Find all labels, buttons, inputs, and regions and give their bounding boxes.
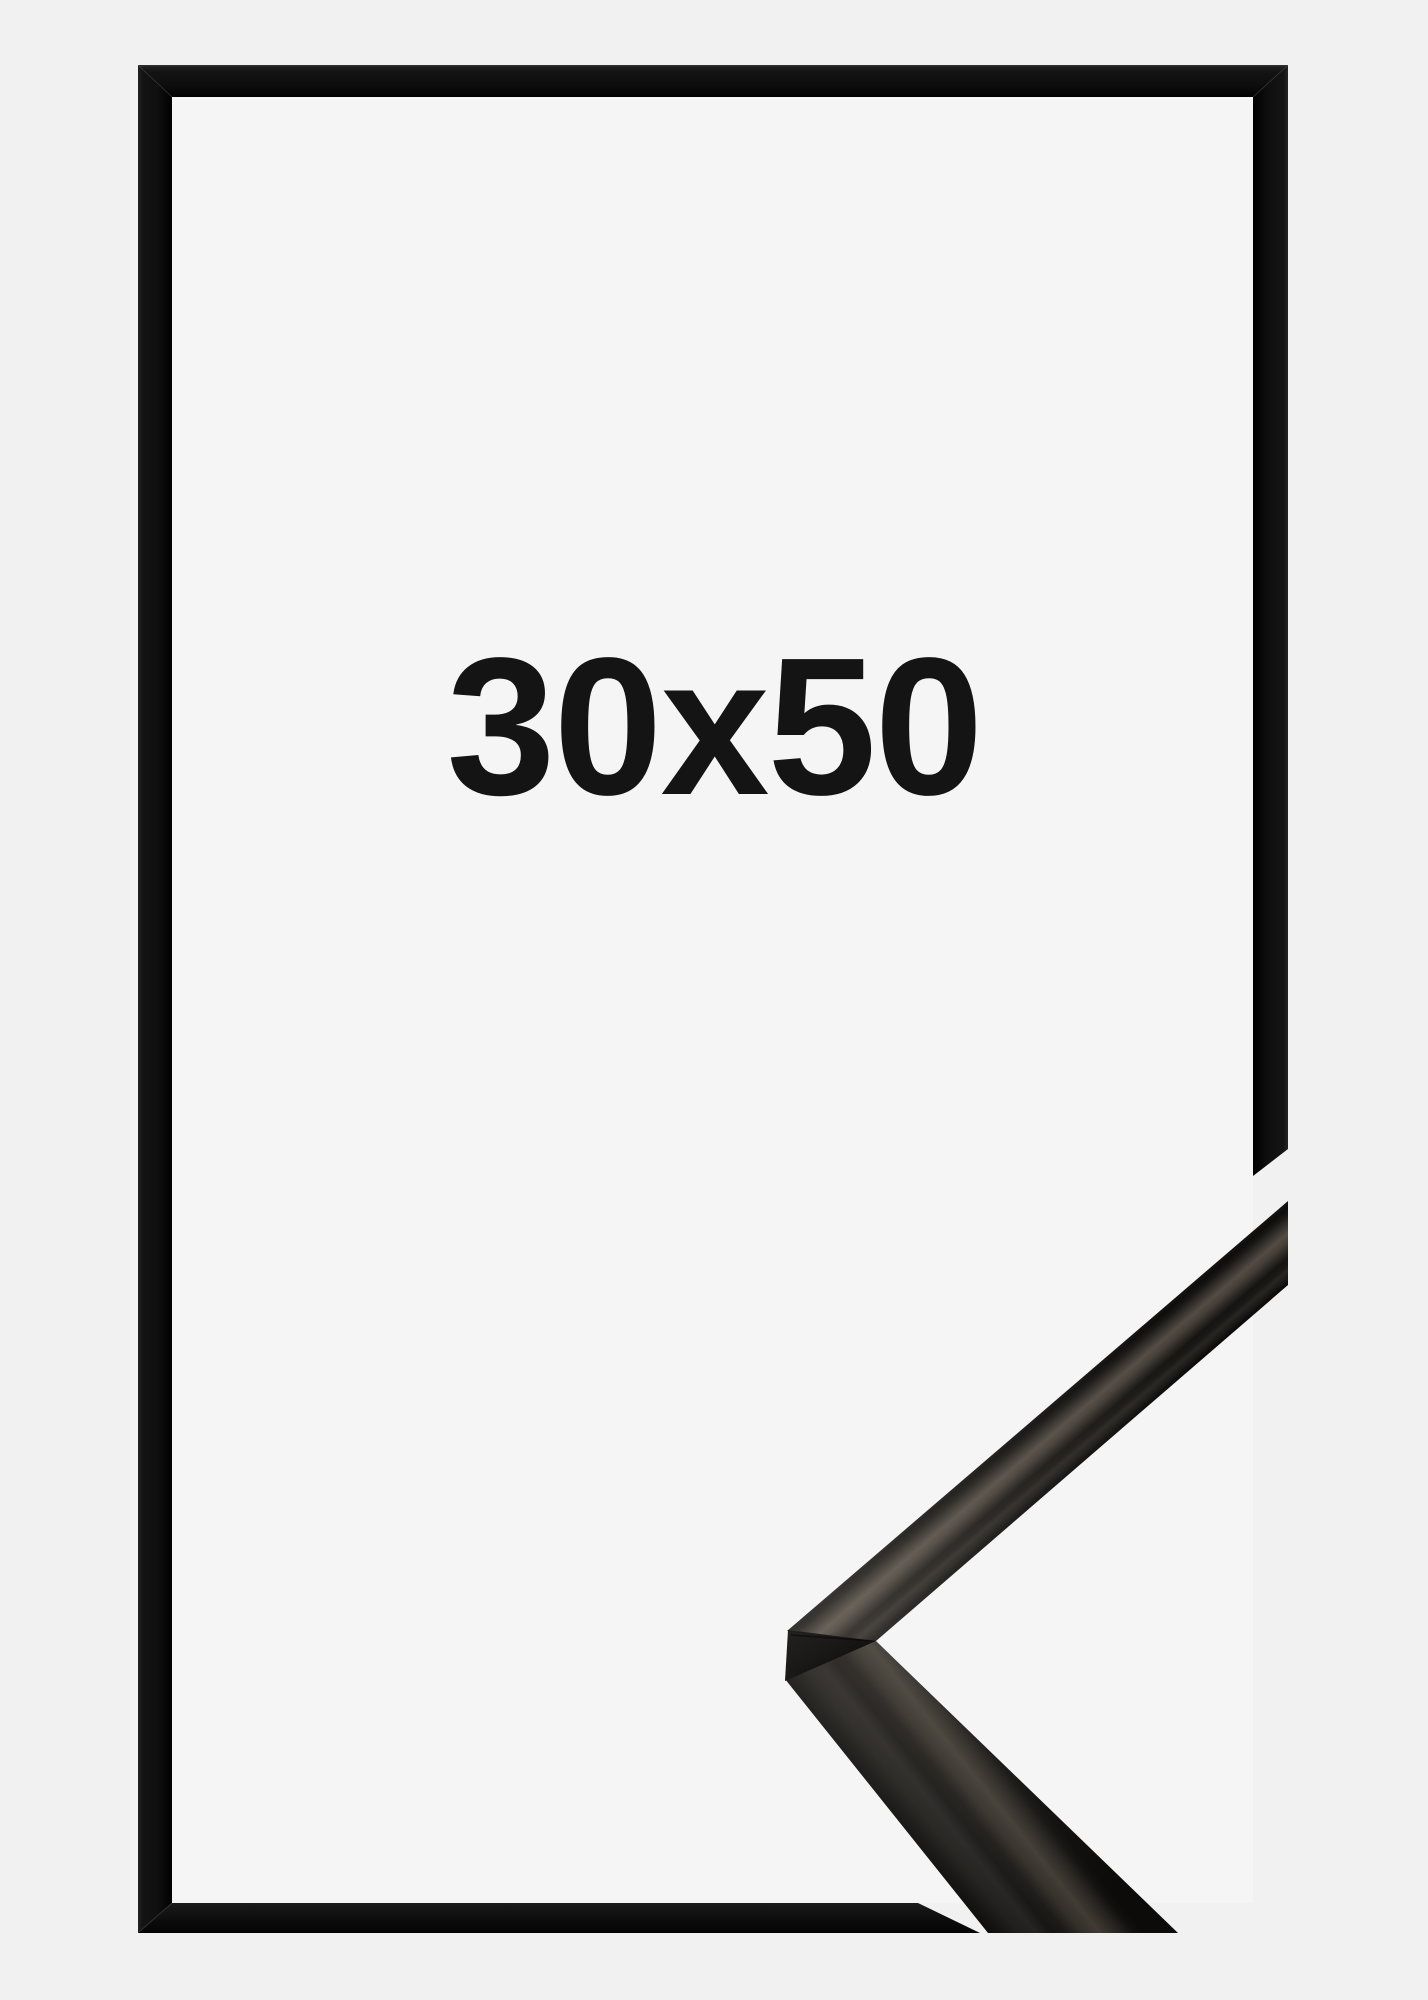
frame-bottom-bar bbox=[138, 1903, 980, 1933]
frame-right-bar bbox=[1253, 65, 1288, 1176]
frame-top-bar bbox=[138, 65, 1288, 97]
frame-left-bar bbox=[138, 65, 172, 1933]
frame-size-label: 30x50 bbox=[0, 629, 1428, 825]
product-image: 30x50 bbox=[0, 0, 1428, 2000]
frame-graphic bbox=[0, 0, 1428, 2000]
frame-backing bbox=[172, 97, 1253, 1903]
